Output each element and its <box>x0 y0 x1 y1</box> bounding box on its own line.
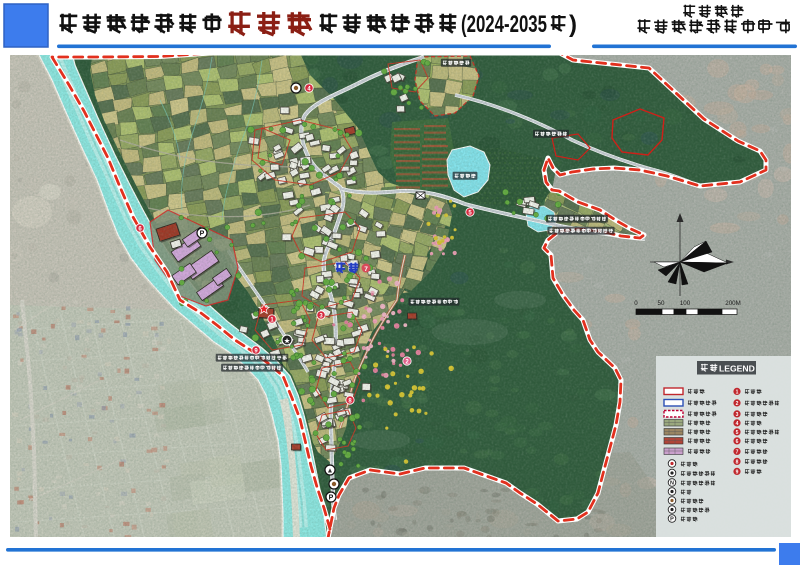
svg-text:3: 3 <box>736 412 739 418</box>
svg-text:N: N <box>670 481 674 487</box>
svg-text:(2024-2035: (2024-2035 <box>461 11 547 38</box>
svg-text:200M: 200M <box>725 300 740 307</box>
svg-text:100: 100 <box>680 300 691 307</box>
svg-text:2: 2 <box>736 401 739 407</box>
svg-text:7: 7 <box>364 266 368 273</box>
svg-text:P: P <box>200 231 205 238</box>
svg-text:4: 4 <box>736 421 739 427</box>
svg-text:P: P <box>670 517 674 523</box>
svg-text:1: 1 <box>736 389 739 395</box>
svg-text:): ) <box>569 11 577 38</box>
svg-text:6: 6 <box>736 439 739 445</box>
svg-text:9: 9 <box>736 469 739 475</box>
svg-text:7: 7 <box>736 449 739 455</box>
svg-text:5: 5 <box>736 430 739 436</box>
svg-text:LEGEND: LEGEND <box>719 364 755 374</box>
svg-text:8: 8 <box>736 459 739 465</box>
svg-text:▲: ▲ <box>327 468 334 475</box>
svg-text:P: P <box>329 495 334 502</box>
svg-text:50: 50 <box>658 300 665 307</box>
svg-text:0: 0 <box>634 300 638 307</box>
